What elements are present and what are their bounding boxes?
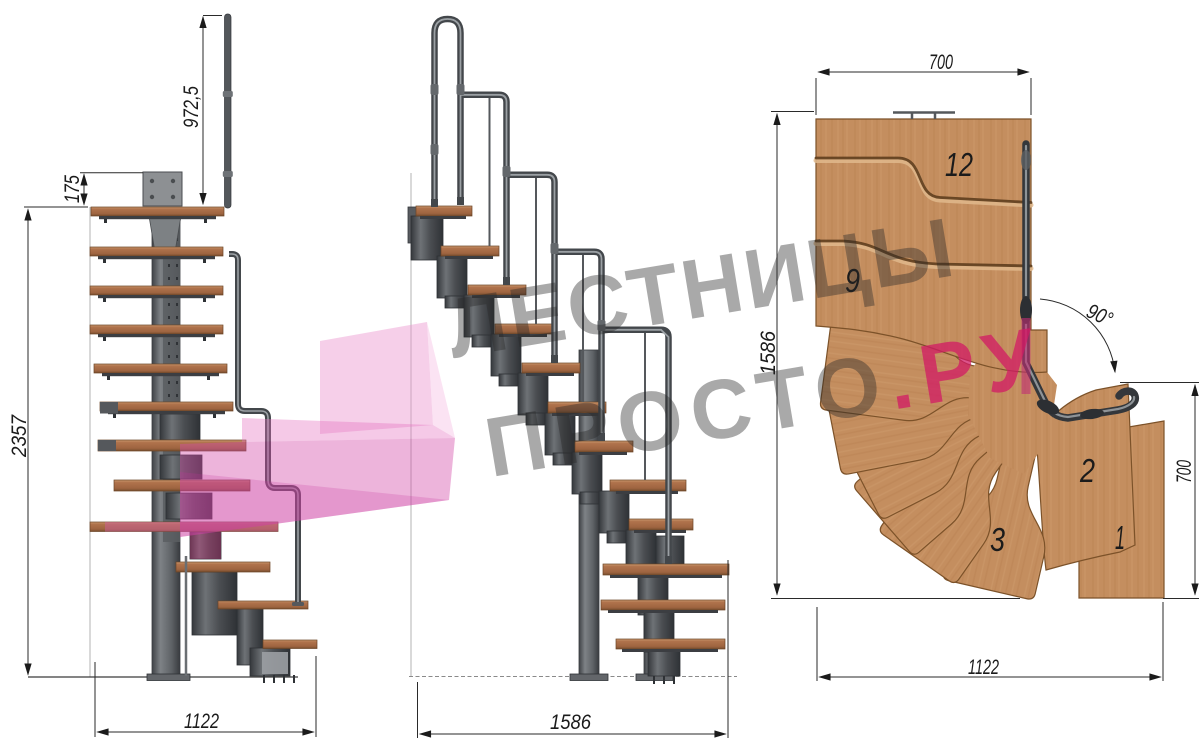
svg-text:175: 175 [61, 175, 84, 203]
svg-text:1586: 1586 [550, 711, 591, 734]
svg-text:2: 2 [1079, 452, 1095, 489]
svg-text:700: 700 [929, 51, 953, 74]
svg-text:1122: 1122 [968, 656, 999, 679]
svg-text:3: 3 [990, 521, 1006, 558]
svg-text:1122: 1122 [184, 710, 219, 733]
svg-text:2357: 2357 [8, 414, 31, 458]
svg-text:700: 700 [1173, 460, 1196, 483]
svg-text:1: 1 [1115, 519, 1125, 556]
svg-text:12: 12 [945, 146, 973, 183]
svg-text:972,5: 972,5 [180, 86, 203, 128]
